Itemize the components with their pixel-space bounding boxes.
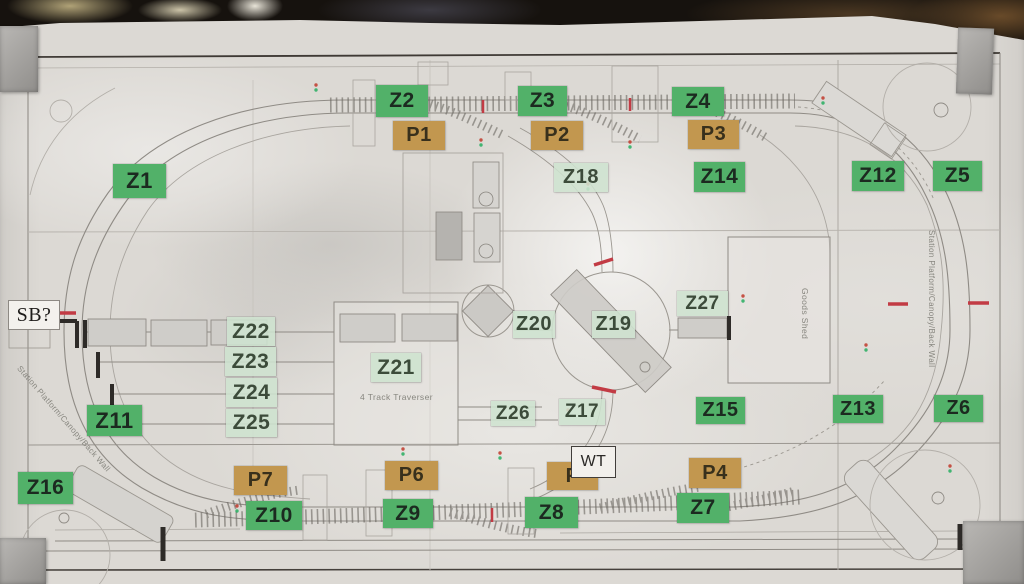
label-z16: Z16 <box>18 472 73 504</box>
label-z1: Z1 <box>113 164 166 198</box>
label-z10: Z10 <box>246 501 302 530</box>
label-z13: Z13 <box>833 395 883 423</box>
corner-clip-top-left <box>0 26 38 92</box>
label-z6: Z6 <box>934 395 983 422</box>
label-z18: Z18 <box>554 163 608 192</box>
label-z11: Z11 <box>87 405 142 436</box>
goods-shed-caption: Goods Shed <box>800 288 810 339</box>
label-p4: P4 <box>689 458 741 488</box>
corner-clip-top-right <box>956 27 994 94</box>
note-wt: WT <box>571 446 616 478</box>
label-z19: Z19 <box>592 311 635 338</box>
traverser-caption: 4 Track Traverser <box>360 392 433 402</box>
corner-clip-bottom-right <box>963 521 1024 584</box>
note-sb: SB? <box>8 300 60 330</box>
label-z4: Z4 <box>672 87 724 116</box>
label-z2: Z2 <box>376 85 428 117</box>
label-z17: Z17 <box>559 399 605 425</box>
label-p7: P7 <box>234 466 287 495</box>
corner-clip-bottom-left <box>0 538 46 584</box>
label-z25: Z25 <box>226 409 277 437</box>
label-z15: Z15 <box>696 397 745 424</box>
label-z12: Z12 <box>852 161 904 191</box>
label-z8: Z8 <box>525 497 578 528</box>
label-z14: Z14 <box>694 162 745 192</box>
label-p1: P1 <box>393 121 445 150</box>
label-z27: Z27 <box>677 291 728 316</box>
label-z9: Z9 <box>383 499 433 528</box>
label-z3: Z3 <box>518 86 567 116</box>
label-z21: Z21 <box>371 353 421 382</box>
label-layer: Z1Z2Z3Z4Z5Z6Z7Z8Z9Z10Z11Z12Z13Z14Z15Z16Z… <box>0 0 1024 584</box>
photo-of-track-plan: Z1Z2Z3Z4Z5Z6Z7Z8Z9Z10Z11Z12Z13Z14Z15Z16Z… <box>0 0 1024 584</box>
label-p6: P6 <box>385 461 438 490</box>
label-z23: Z23 <box>225 347 276 376</box>
label-z22: Z22 <box>227 317 275 346</box>
label-z20: Z20 <box>513 311 555 338</box>
label-z24: Z24 <box>226 378 277 407</box>
back-wall-right-caption: Station Platform/Canopy/Back Wall <box>927 230 936 367</box>
label-z7: Z7 <box>677 493 729 523</box>
label-z26: Z26 <box>491 401 535 426</box>
label-p2: P2 <box>531 121 583 150</box>
label-z5: Z5 <box>933 161 982 191</box>
label-p3: P3 <box>688 120 739 149</box>
